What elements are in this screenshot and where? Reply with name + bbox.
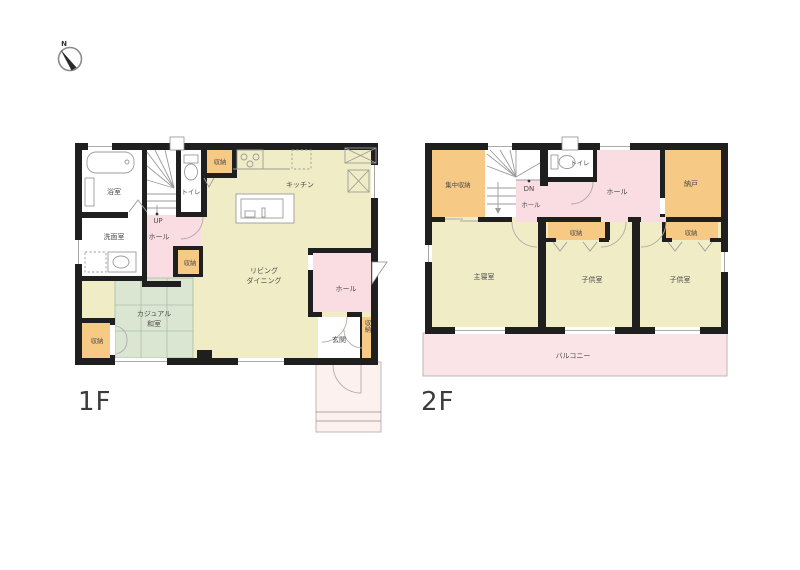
label-storage-child1: 収納 xyxy=(570,228,583,237)
label-storage-child2: 収納 xyxy=(685,228,698,237)
label-storeroom: 納戸 xyxy=(684,179,698,188)
label-storage-kitchen: 収納 xyxy=(214,157,227,166)
label-bathroom: 浴室 xyxy=(107,187,121,196)
label-child-room2: 子供室 xyxy=(670,275,691,284)
label-stairs-up: UP xyxy=(153,217,162,225)
label-entrance: 玄関 xyxy=(332,335,346,344)
label-storage-hall: 収納 xyxy=(184,258,197,267)
floor-plan-page: N xyxy=(0,0,800,570)
label-living: リビング xyxy=(250,266,278,275)
label-master-bedroom: 主寝室 xyxy=(474,272,495,281)
label-stairs-dn: DN xyxy=(524,185,535,193)
label-tatami-2: 和室 xyxy=(147,319,161,328)
label-hall-stairs-1f: ホール xyxy=(149,233,170,241)
label-child-room1: 子供室 xyxy=(582,275,603,284)
floor2-title: 2F xyxy=(421,387,455,417)
label-hall-entrance: ホール xyxy=(336,285,357,293)
label-kitchen: キッチン xyxy=(286,181,314,189)
label-storage-entrance: 収納 xyxy=(364,319,371,333)
floor1-plan: 浴室 トイレ 収納 キッチン 洗面室 UP ホール 収納 リビング ダイニング … xyxy=(75,137,387,432)
label-hall-2f: ホール xyxy=(607,188,628,196)
label-toilet-2f: トイレ xyxy=(571,160,590,167)
label-storage-tatami: 収納 xyxy=(91,336,104,345)
room-tatami xyxy=(115,278,193,358)
floor-plan-drawing: N xyxy=(0,0,800,570)
label-washroom: 洗面室 xyxy=(104,232,125,241)
room-hall-stairs-1f xyxy=(147,215,176,282)
label-toilet-1f: トイレ xyxy=(182,189,201,196)
label-hall-stairs-2f: ホール xyxy=(522,201,541,209)
label-dining: ダイニング xyxy=(247,276,282,285)
floor1-title: 1F xyxy=(78,387,112,417)
floor2-plan: 集中収納 DN ホール トイレ ホール 納戸 主寝室 収納 子供室 収納 子供室… xyxy=(421,137,728,417)
compass-north-label: N xyxy=(61,40,67,48)
room-hall-entrance xyxy=(313,253,371,312)
compass-icon: N xyxy=(59,40,82,71)
label-central-storage: 集中収納 xyxy=(445,180,470,189)
label-tatami-1: カジュアル xyxy=(137,310,171,318)
label-balcony: バルコニー xyxy=(556,352,591,360)
floor1-porch xyxy=(316,362,381,432)
